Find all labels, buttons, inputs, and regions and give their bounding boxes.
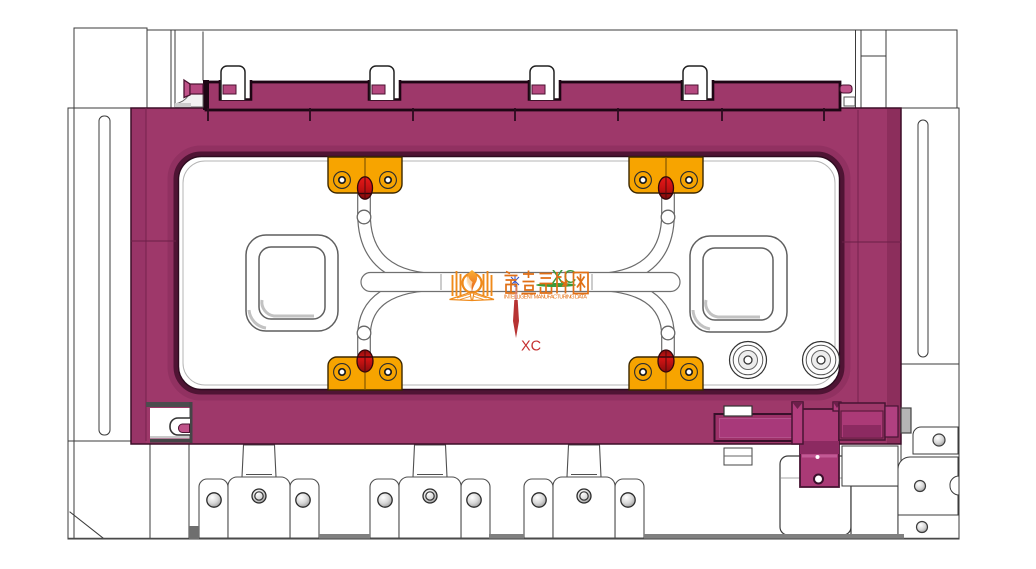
svg-text:XC: XC [521,339,541,355]
